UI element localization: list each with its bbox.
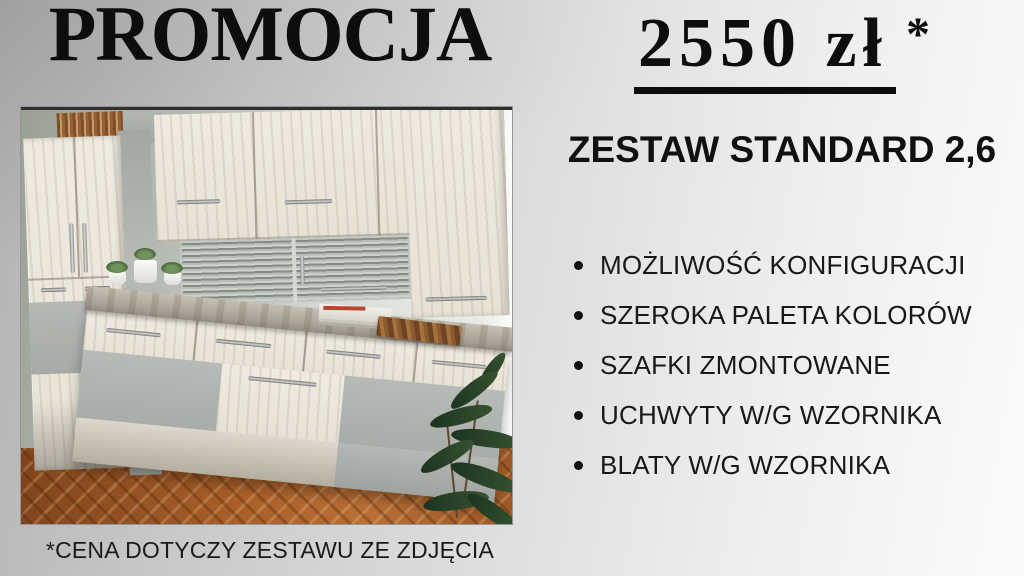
product-photo-kitchen-set	[21, 107, 512, 524]
feature-item: UCHWYTY W/G WZORNIKA	[572, 400, 1024, 430]
succulent	[134, 248, 156, 260]
feature-item: SZAFKI ZMONTOWANE	[572, 350, 1024, 380]
cabinet-seam	[412, 342, 418, 382]
ribbed-glass-sliding-doors	[180, 235, 412, 305]
wood-front	[216, 363, 345, 443]
cabinet-seam	[74, 137, 81, 277]
magazine-cover	[323, 306, 365, 311]
upper-cabinet-doors	[154, 108, 409, 242]
price-block: 2550 zł*	[550, 6, 1014, 94]
succulent	[161, 262, 183, 274]
cabinet-seam	[303, 332, 309, 372]
drawer-handle	[216, 339, 271, 348]
price-asterisk: *	[906, 7, 930, 62]
cabinet-handle	[425, 296, 487, 302]
product-name: ZESTAW STANDARD 2,6	[550, 129, 1014, 171]
price-amount: 2550 zł	[634, 6, 896, 94]
cabinet-handle	[82, 223, 88, 273]
drawer-handle	[40, 287, 66, 292]
feature-list: MOŻLIWOŚĆ KONFIGURACJI SZEROKA PALETA KO…	[550, 250, 1024, 500]
upper-tall-cabinet	[406, 107, 510, 318]
cabinet-handle	[176, 199, 220, 204]
promo-banner: PROMOCJA 2550 zł* ZESTAW STANDARD 2,6 MO…	[0, 0, 1024, 576]
aluminum-frame	[291, 238, 297, 302]
potted-plant	[411, 382, 512, 524]
drawer-handle	[106, 328, 161, 337]
cabinet-seam	[375, 109, 381, 236]
price-footnote: *CENA DOTYCZY ZESTAWU ZE ZDJĘCIA	[30, 537, 510, 564]
feature-item: BLATY W/G WZORNIKA	[572, 450, 1024, 480]
feature-item: SZEROKA PALETA KOLORÓW	[572, 300, 1024, 330]
plant-pot	[109, 271, 126, 285]
succulent	[106, 261, 128, 273]
feature-item: MOŻLIWOŚĆ KONFIGURACJI	[572, 250, 1024, 280]
drawer-handle	[326, 350, 381, 359]
cabinet-seam	[252, 112, 258, 239]
cabinet-seam	[193, 321, 199, 361]
plant-pot	[134, 260, 157, 283]
cabinet-handle	[284, 199, 332, 204]
drawer-handle	[248, 376, 317, 387]
promo-title: PROMOCJA	[30, 0, 510, 80]
sliding-door-handle	[321, 286, 387, 292]
drawer-handle	[431, 360, 486, 369]
cabinet-handle	[69, 223, 75, 273]
sliding-door-handle	[300, 256, 305, 284]
